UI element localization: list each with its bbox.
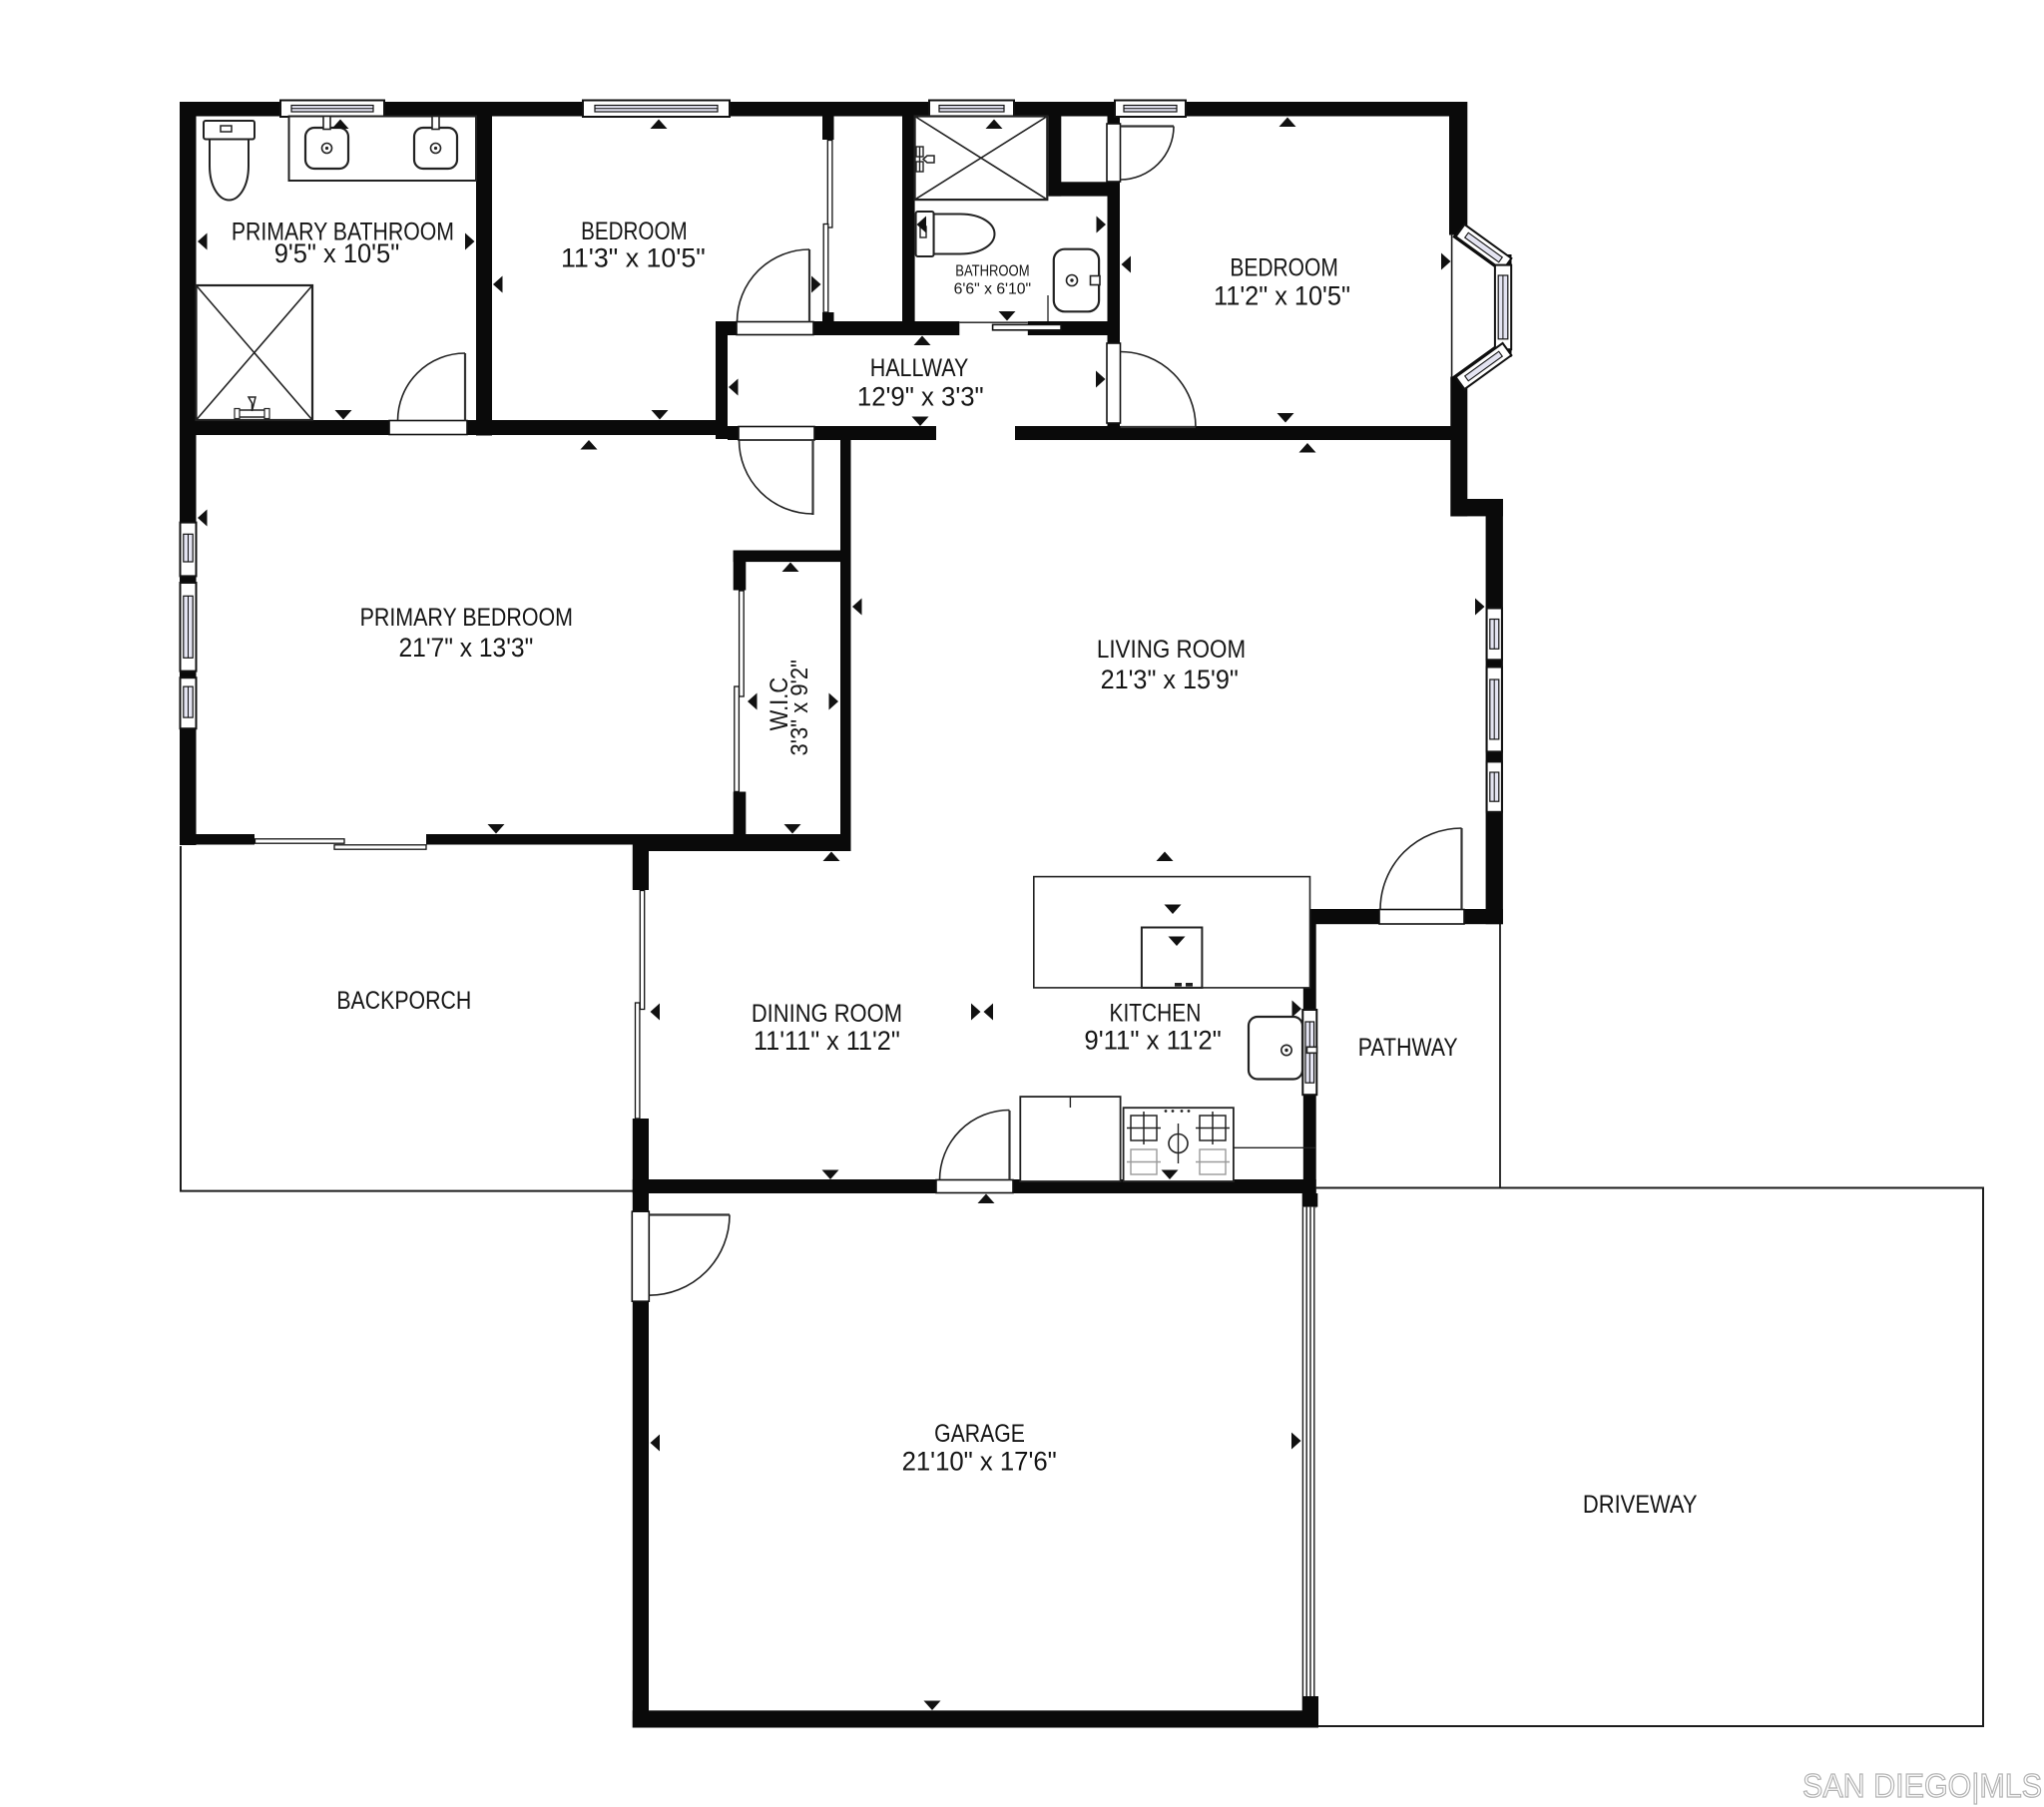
svg-text:21'10" x 17'6": 21'10" x 17'6" bbox=[902, 1446, 1057, 1476]
svg-text:6'6" x 6'10": 6'6" x 6'10" bbox=[954, 281, 1032, 298]
svg-text:11'2" x 10'5": 11'2" x 10'5" bbox=[1214, 280, 1350, 310]
svg-text:PRIMARY BEDROOM: PRIMARY BEDROOM bbox=[360, 603, 573, 631]
svg-text:BATHROOM: BATHROOM bbox=[955, 263, 1029, 280]
svg-text:HALLWAY: HALLWAY bbox=[870, 353, 969, 381]
svg-text:SAN DIEGO|MLS: SAN DIEGO|MLS bbox=[1802, 1767, 2042, 1804]
svg-text:DINING ROOM: DINING ROOM bbox=[752, 1000, 902, 1028]
svg-text:9'11" x 11'2": 9'11" x 11'2" bbox=[1084, 1026, 1221, 1056]
svg-text:21'3" x 15'9": 21'3" x 15'9" bbox=[1101, 665, 1239, 694]
svg-text:9'5" x 10'5": 9'5" x 10'5" bbox=[274, 238, 400, 268]
svg-text:GARAGE: GARAGE bbox=[934, 1419, 1025, 1447]
svg-text:3'3" x 9'2": 3'3" x 9'2" bbox=[785, 660, 812, 755]
svg-text:BACKPORCH: BACKPORCH bbox=[336, 986, 471, 1014]
svg-text:DRIVEWAY: DRIVEWAY bbox=[1583, 1490, 1698, 1518]
svg-text:LIVING ROOM: LIVING ROOM bbox=[1097, 637, 1246, 664]
svg-text:BEDROOM: BEDROOM bbox=[1230, 253, 1337, 281]
svg-text:KITCHEN: KITCHEN bbox=[1109, 999, 1201, 1027]
svg-text:BEDROOM: BEDROOM bbox=[581, 217, 688, 244]
svg-text:12'9" x 3'3": 12'9" x 3'3" bbox=[857, 381, 984, 411]
svg-text:PATHWAY: PATHWAY bbox=[1358, 1033, 1458, 1061]
svg-text:11'3" x 10'5": 11'3" x 10'5" bbox=[561, 243, 706, 273]
svg-text:11'11" x 11'2": 11'11" x 11'2" bbox=[754, 1026, 900, 1056]
svg-text:21'7" x 13'3": 21'7" x 13'3" bbox=[399, 633, 534, 663]
